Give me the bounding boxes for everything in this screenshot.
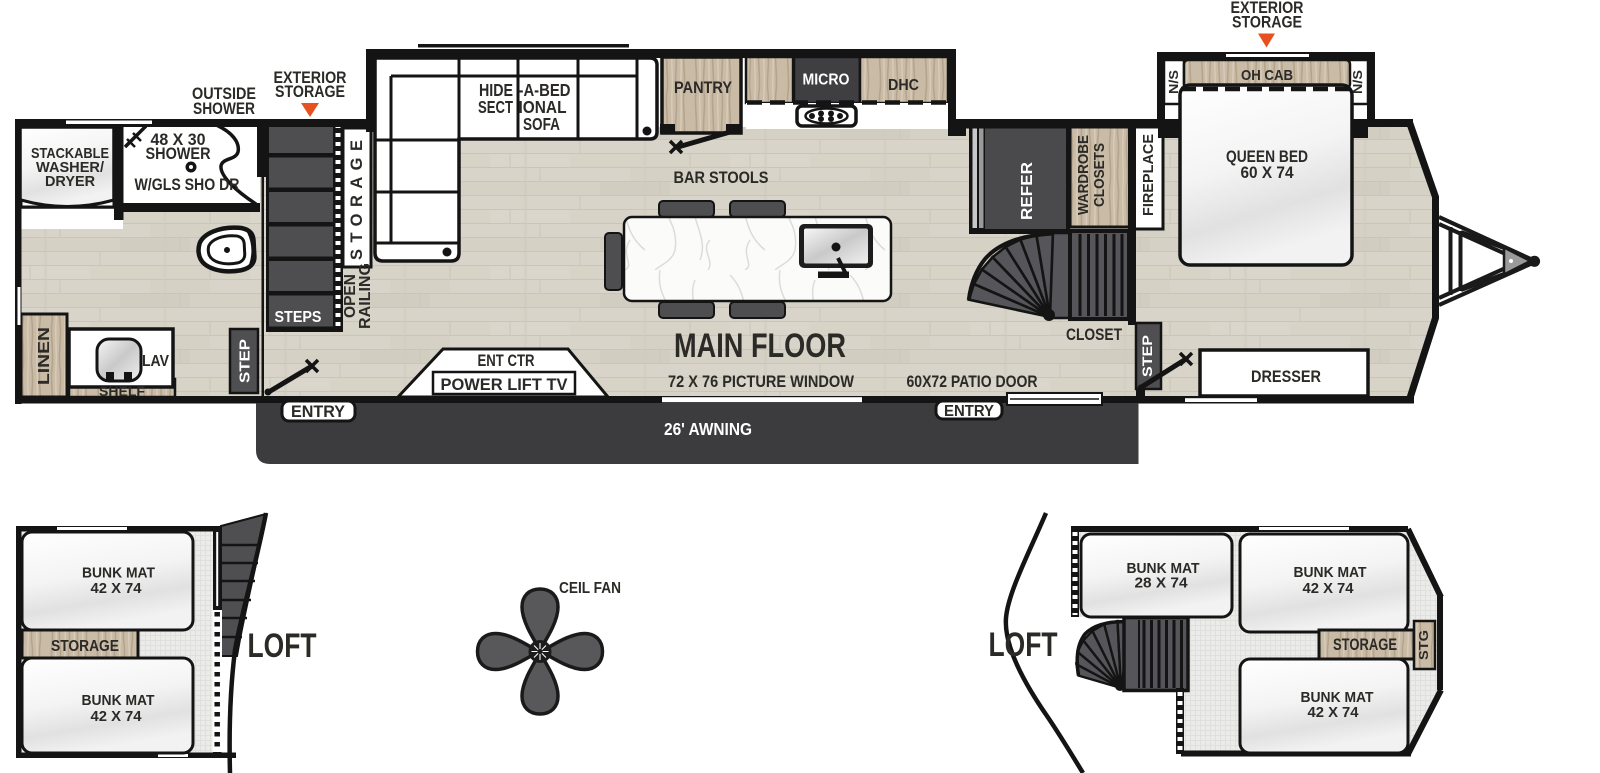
svg-text:60 X 74: 60 X 74	[1241, 164, 1295, 182]
svg-text:STORAGE: STORAGE	[1333, 636, 1397, 654]
svg-text:STORAGE: STORAGE	[51, 638, 119, 655]
svg-text:LINEN: LINEN	[36, 327, 53, 385]
svg-text:DRESSER: DRESSER	[1251, 368, 1321, 386]
svg-text:CEIL FAN: CEIL FAN	[559, 580, 621, 597]
svg-text:MICRO: MICRO	[803, 72, 850, 89]
svg-text:BAR STOOLS: BAR STOOLS	[674, 169, 769, 187]
svg-text:REFER: REFER	[1019, 162, 1036, 220]
svg-text:42 X 74: 42 X 74	[91, 580, 143, 597]
svg-text:SHOWER: SHOWER	[193, 99, 255, 118]
svg-text:ENTRY: ENTRY	[291, 403, 345, 421]
svg-text:STG: STG	[1416, 630, 1431, 660]
svg-text:DRYER: DRYER	[45, 173, 95, 190]
svg-text:60X72 PATIO DOOR: 60X72 PATIO DOOR	[907, 373, 1038, 391]
svg-text:BUNK MAT: BUNK MAT	[82, 692, 156, 709]
svg-text:STORAGE: STORAGE	[1232, 13, 1302, 32]
svg-text:RAILING: RAILING	[357, 263, 374, 329]
svg-text:STORAGE: STORAGE	[348, 140, 366, 260]
svg-text:CLOSETS: CLOSETS	[1091, 143, 1108, 207]
svg-text:CLOSET: CLOSET	[1066, 326, 1122, 344]
svg-text:42 X 74: 42 X 74	[1308, 704, 1360, 721]
svg-text:LOFT: LOFT	[248, 627, 317, 665]
svg-text:42 X 74: 42 X 74	[1303, 580, 1355, 597]
svg-text:N/S: N/S	[1167, 70, 1181, 94]
svg-text:ENTRY: ENTRY	[944, 403, 994, 420]
svg-text:W/GLS SHO DR: W/GLS SHO DR	[135, 175, 240, 194]
svg-text:POWER LIFT TV: POWER LIFT TV	[441, 376, 568, 394]
svg-text:MAIN FLOOR: MAIN FLOOR	[674, 327, 846, 365]
svg-text:SOFA: SOFA	[523, 114, 560, 134]
svg-text:STEPS: STEPS	[275, 309, 322, 326]
svg-text:OH CAB: OH CAB	[1241, 67, 1293, 84]
svg-text:FIREPLACE: FIREPLACE	[1140, 134, 1157, 216]
svg-text:STEP: STEP	[237, 339, 254, 383]
svg-text:26' AWNING: 26' AWNING	[664, 419, 752, 439]
svg-text:STEP: STEP	[1140, 335, 1155, 377]
svg-text:SECT: SECT	[478, 97, 513, 117]
svg-text:BUNK MAT: BUNK MAT	[82, 565, 156, 582]
svg-text:42 X 74: 42 X 74	[91, 708, 143, 725]
svg-text:SHOWER: SHOWER	[146, 144, 211, 163]
svg-text:LOFT: LOFT	[989, 626, 1058, 664]
svg-text:28 X 74: 28 X 74	[1135, 575, 1189, 592]
svg-text:STORAGE: STORAGE	[275, 82, 345, 101]
svg-text:ENT CTR: ENT CTR	[478, 352, 535, 370]
svg-text:N/S: N/S	[1351, 70, 1365, 94]
svg-text:BUNK MAT: BUNK MAT	[1294, 564, 1368, 581]
svg-text:LAV: LAV	[142, 353, 170, 370]
svg-text:DHC: DHC	[888, 77, 919, 94]
svg-text:WARDROBE: WARDROBE	[1075, 135, 1092, 215]
svg-text:PANTRY: PANTRY	[674, 79, 732, 97]
svg-text:72 X 76 PICTURE WINDOW: 72 X 76 PICTURE WINDOW	[668, 373, 854, 391]
